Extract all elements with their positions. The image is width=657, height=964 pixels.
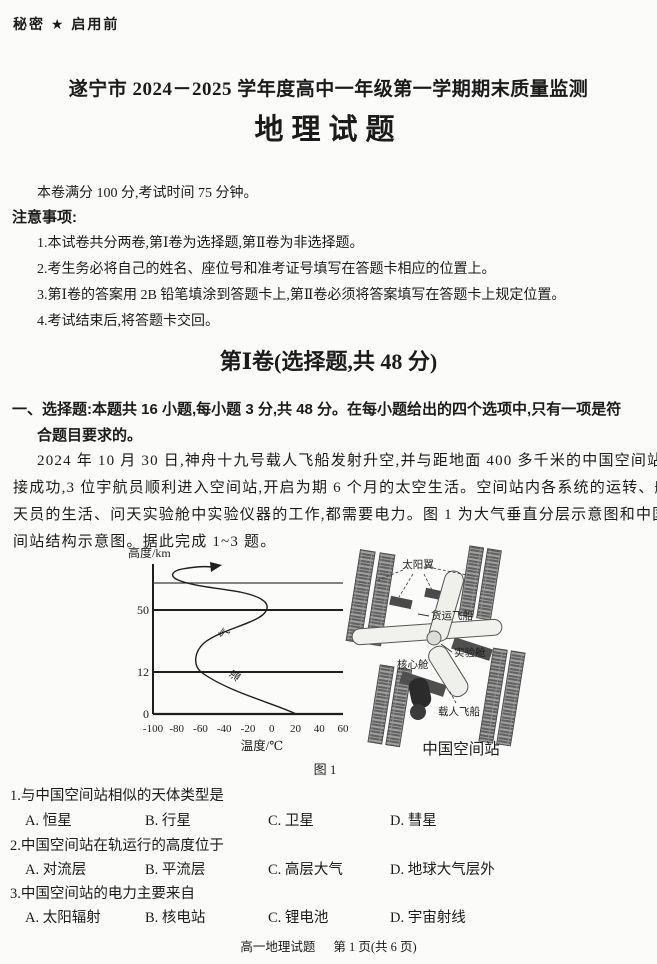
option-a: A. 太阳辐射	[25, 906, 101, 927]
label-crew-ship: 载人飞船	[438, 705, 480, 718]
x-tick: -40	[217, 723, 232, 735]
section-1-instruction-line-1: 一、选择题:本题共 16 小题,每小题 3 分,共 48 分。在每小题给出的四个…	[12, 398, 621, 419]
x-axis-label: 温度/℃	[241, 738, 283, 753]
curve-label-char-1: 气	[216, 625, 233, 641]
question-1-stem: 1.与中国空间站相似的天体类型是	[10, 784, 224, 805]
solar-panel-bottom-right	[479, 648, 525, 746]
passage-line-2: 接成功,3 位宇航员顺利进入空间站,开启为期 6 个月的太空生活。空间站内各系统…	[13, 476, 657, 497]
option-d: D. 宇宙射线	[390, 906, 466, 927]
station-caption: 中国空间站	[422, 740, 500, 758]
footer-page-number: 第 1 页(共 6 页)	[333, 940, 416, 954]
question-1-options: A. 恒星 B. 行星 C. 卫星 D. 彗星	[25, 809, 635, 829]
option-d: D. 地球大气层外	[390, 858, 495, 879]
x-tick: -100	[143, 723, 164, 735]
x-tick: 40	[314, 723, 326, 735]
option-b: B. 行星	[145, 809, 191, 830]
label-lab-module: 实验舱	[454, 646, 486, 659]
figure-1-svg: 高度/km 50 12 0 -100 -80 -60 -40 -20 0 20 …	[100, 540, 570, 780]
curve-label-char-2: 温	[228, 668, 244, 684]
option-a: A. 恒星	[25, 809, 72, 830]
section-1-instruction-line-2: 合题目要求的。	[37, 424, 142, 445]
label-core-module: 核心舱	[397, 658, 429, 671]
section-1-title: 第Ⅰ卷(选择题,共 48 分)	[0, 344, 657, 376]
question-2-options: A. 对流层 B. 平流层 C. 高层大气 D. 地球大气层外	[25, 858, 635, 878]
y-tick-0: 0	[143, 707, 149, 721]
notice-item-4: 4.考试结束后,将答题卡交回。	[37, 310, 219, 330]
question-3-options: A. 太阳辐射 B. 核电站 C. 锂电池 D. 宇宙射线	[25, 906, 635, 926]
option-d: D. 彗星	[390, 809, 437, 830]
solar-panel-top-right	[459, 546, 502, 620]
x-tick: 60	[338, 723, 350, 735]
option-c: C. 卫星	[268, 809, 314, 830]
x-tick: 0	[269, 723, 275, 735]
atmosphere-layer-chart: 高度/km 50 12 0 -100 -80 -60 -40 -20 0 20 …	[128, 545, 349, 753]
option-c: C. 高层大气	[268, 858, 343, 879]
notice-heading: 注意事项:	[12, 206, 77, 227]
page-footer: 高一地理试题第 1 页(共 6 页)	[0, 936, 657, 955]
space-station-illustration: 太阳翼 货运飞船 实验舱 核心舱 载人飞船 中国空间站	[346, 546, 525, 758]
label-cargo-ship: 货运飞船	[431, 609, 473, 622]
curve-arrowhead	[210, 562, 222, 572]
option-b: B. 平流层	[145, 858, 205, 879]
x-tick: -80	[169, 723, 184, 735]
figure-1: 高度/km 50 12 0 -100 -80 -60 -40 -20 0 20 …	[100, 540, 570, 785]
small-panel-left	[389, 596, 412, 609]
temperature-curve	[173, 567, 296, 714]
y-axis-label: 高度/km	[128, 545, 171, 560]
exam-paper-page: 秘密 ★ 启用前 遂宁市 2024－2025 学年度高中一年级第一学期期末质量监…	[0, 0, 657, 964]
passage-line-3: 天员的生活、问天实验舱中实验仪器的工作,都需要电力。图 1 为大气垂直分层示意图…	[13, 503, 657, 524]
notice-item-2: 2.考生务必将自己的姓名、座位号和准考证号填写在答题卡相应的位置上。	[37, 258, 496, 278]
x-tick: -60	[193, 723, 208, 735]
option-b: B. 核电站	[145, 906, 205, 927]
y-tick-50: 50	[137, 603, 149, 617]
exam-info-line: 本卷满分 100 分,考试时间 75 分钟。	[37, 182, 258, 202]
passage-line-1: 2024 年 10 月 30 日,神舟十九号载人飞船发射升空,并与距地面 400…	[37, 449, 657, 470]
subject-title: 地理试题	[0, 106, 657, 148]
label-solar-wing: 太阳翼	[402, 558, 434, 571]
option-c: C. 锂电池	[268, 906, 328, 927]
exam-title: 遂宁市 2024－2025 学年度高中一年级第一学期期末质量监测	[0, 74, 657, 101]
crew-ship-capsule	[410, 704, 426, 720]
footer-exam-name: 高一地理试题	[240, 940, 315, 954]
x-tick: 20	[290, 723, 302, 735]
classification-marking: 秘密 ★ 启用前	[13, 14, 119, 34]
option-a: A. 对流层	[25, 858, 86, 879]
question-2-stem: 2.中国空间站在轨运行的高度位于	[10, 834, 224, 855]
docking-node	[427, 631, 441, 645]
figure-caption: 图 1	[314, 762, 337, 777]
notice-item-1: 1.本试卷共分两卷,第Ⅰ卷为选择题,第Ⅱ卷为非选择题。	[37, 232, 364, 252]
notice-item-3: 3.第Ⅰ卷的答案用 2B 铅笔填涂到答题卡上,第Ⅱ卷必须将答案填写在答题卡上规定…	[37, 284, 565, 304]
y-tick-12: 12	[137, 665, 149, 679]
x-tick: -20	[241, 723, 256, 735]
question-3-stem: 3.中国空间站的电力主要来自	[10, 882, 195, 903]
